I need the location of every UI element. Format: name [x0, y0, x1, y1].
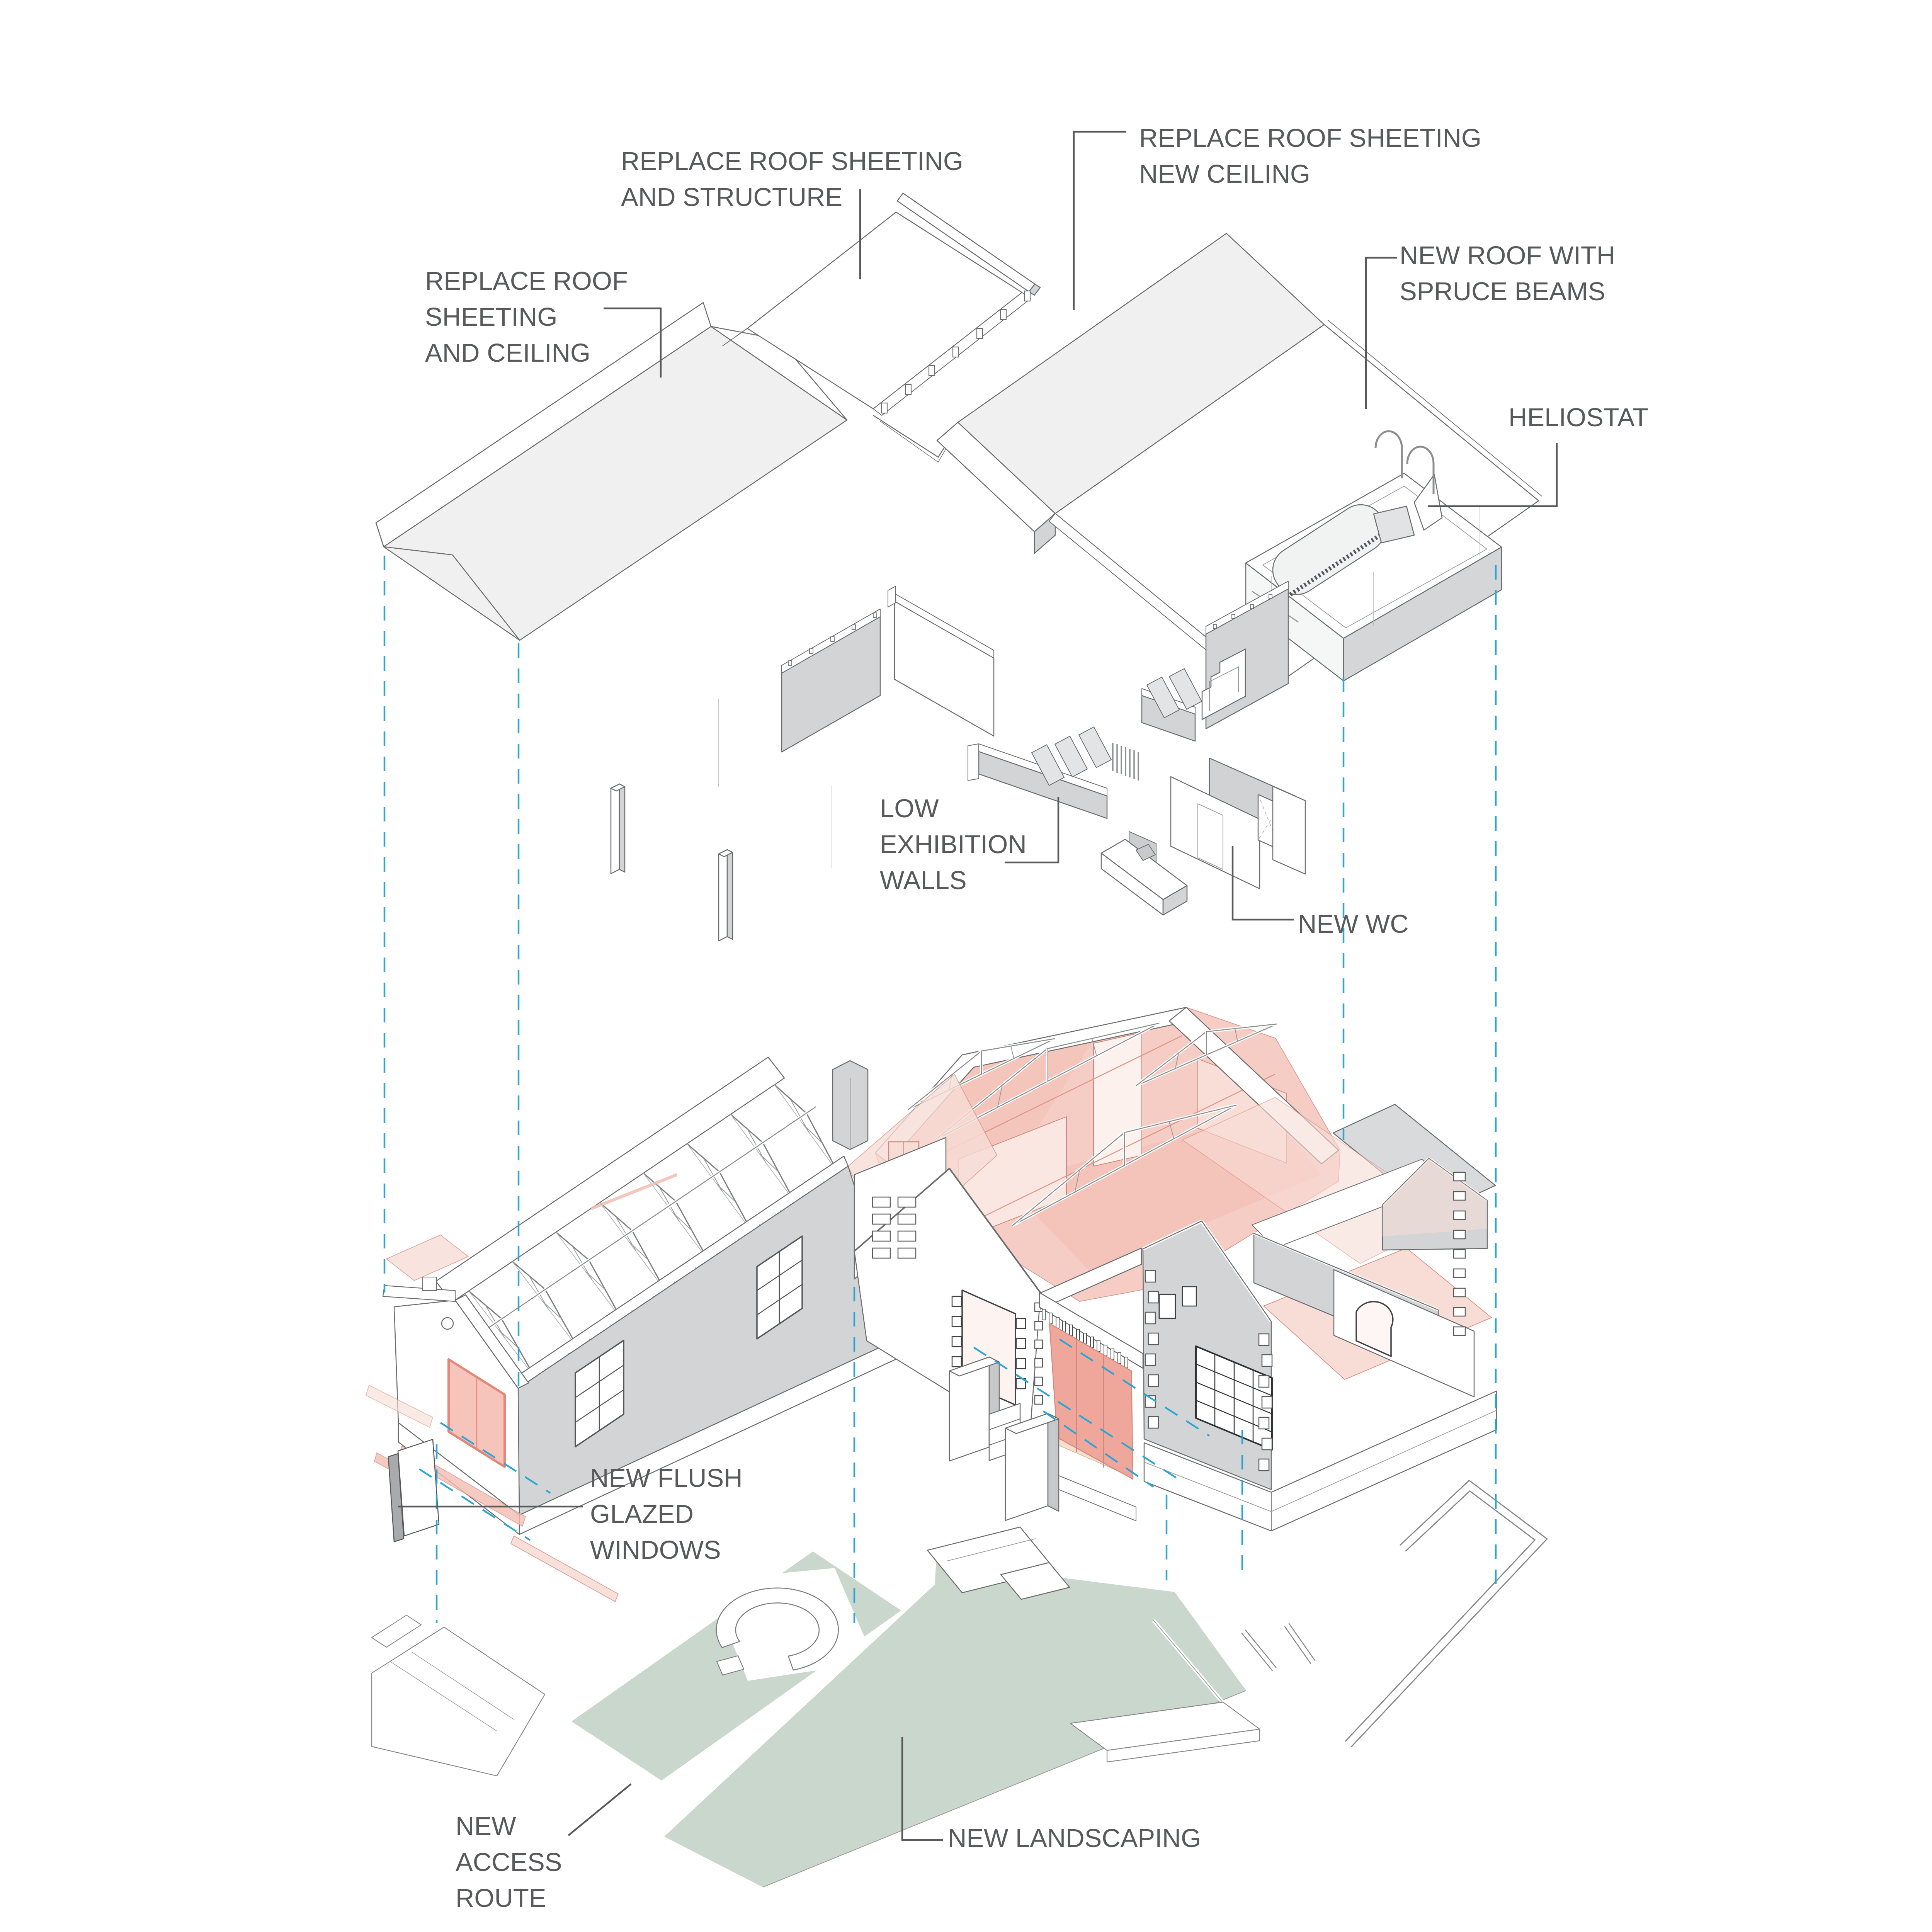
- svg-text:NEW: NEW: [456, 1812, 516, 1841]
- svg-text:ACCESS: ACCESS: [456, 1848, 562, 1877]
- svg-text:HELIOSTAT: HELIOSTAT: [1509, 403, 1648, 432]
- svg-text:ROUTE: ROUTE: [456, 1884, 546, 1913]
- svg-text:REPLACE ROOF SHEETING: REPLACE ROOF SHEETING: [1139, 124, 1481, 153]
- svg-text:NEW ROOF WITH: NEW ROOF WITH: [1400, 241, 1615, 270]
- svg-text:REPLACE ROOF: REPLACE ROOF: [425, 267, 628, 296]
- svg-text:NEW LANDSCAPING: NEW LANDSCAPING: [948, 1824, 1201, 1853]
- svg-text:SHEETING: SHEETING: [425, 303, 558, 332]
- svg-text:NEW FLUSH: NEW FLUSH: [590, 1464, 743, 1493]
- svg-text:LOW: LOW: [880, 794, 939, 823]
- svg-text:NEW WC: NEW WC: [1298, 910, 1409, 939]
- svg-text:AND CEILING: AND CEILING: [425, 338, 590, 367]
- svg-text:WALLS: WALLS: [880, 866, 967, 895]
- svg-text:AND STRUCTURE: AND STRUCTURE: [621, 183, 842, 212]
- svg-text:REPLACE ROOF SHEETING: REPLACE ROOF SHEETING: [621, 147, 963, 176]
- svg-text:NEW CEILING: NEW CEILING: [1139, 160, 1310, 189]
- svg-text:WINDOWS: WINDOWS: [590, 1536, 721, 1565]
- svg-text:SPRUCE BEAMS: SPRUCE BEAMS: [1400, 277, 1605, 306]
- svg-text:GLAZED: GLAZED: [590, 1500, 694, 1529]
- svg-text:EXHIBITION: EXHIBITION: [880, 830, 1027, 859]
